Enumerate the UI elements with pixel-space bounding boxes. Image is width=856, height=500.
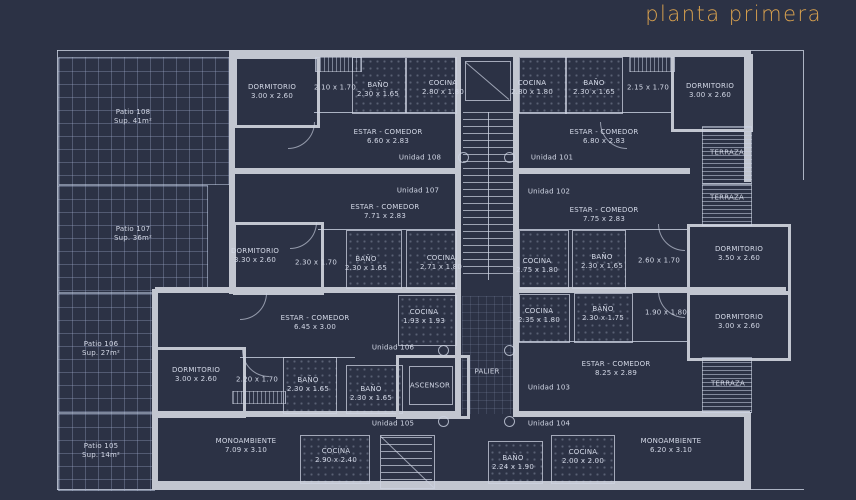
door-symbol: [504, 416, 515, 427]
room-dims: 2.60 x 1.70: [638, 256, 680, 265]
room-dims: 3.00 x 2.60: [715, 322, 763, 331]
room-name: MONOAMBIENTE: [641, 437, 702, 446]
room-name: ESTAR - COMEDOR: [570, 206, 639, 215]
room-dims: 6.60 x 2.83: [354, 137, 423, 146]
room-name: BAÑO: [287, 376, 329, 385]
room-dims: 2.80 x 1.80: [422, 88, 464, 97]
page-title: planta primera: [645, 2, 822, 27]
room-name: DORMITORIO: [231, 247, 279, 256]
room-name: COCINA: [422, 79, 464, 88]
room-dims: 2.30 x 1.65: [573, 88, 615, 97]
room-label: ESTAR - COMEDOR 7.75 x 2.83: [570, 206, 639, 224]
room-label: COCINA 2.80 x 1.80: [511, 79, 553, 97]
unit-label: Unidad 103: [528, 383, 570, 392]
room-label: BAÑO 2.30 x 1.75: [582, 305, 624, 323]
unit-label: Unidad 107: [397, 186, 439, 195]
room-name: BAÑO: [573, 79, 615, 88]
room-dims: 2.30 x 1.65: [357, 90, 399, 99]
terraza-label: TERRAZA: [710, 193, 744, 202]
room-dims: 6.80 x 2.83: [570, 137, 639, 146]
wall: [233, 168, 457, 174]
ascensor-name: ASCENSOR: [410, 381, 450, 390]
room-dims: 6.20 x 3.10: [641, 446, 702, 455]
patio-label: Patio 106 Sup. 27m²: [82, 340, 120, 358]
hatch-strip: [629, 57, 675, 72]
room-label: BAÑO 2.30 x 1.65: [357, 81, 399, 99]
room-dims: 2.71 x 1.80: [420, 263, 462, 272]
room-label: BAÑO 2.30 x 1.65: [573, 79, 615, 97]
dim-label: 1.90 x 1.80: [645, 308, 687, 317]
unit-label: Unidad 104: [528, 419, 570, 428]
door-arc: [288, 122, 315, 149]
room-dims: 6.45 x 3.00: [281, 323, 350, 332]
room-dims: 7.75 x 2.83: [570, 215, 639, 224]
partition: [318, 229, 455, 230]
room-label: MONOAMBIENTE 6.20 x 3.10: [641, 437, 702, 455]
patio-name: Patio 105: [82, 442, 120, 451]
unit-name: Unidad 105: [372, 419, 414, 428]
room-dims: 7.09 x 3.10: [216, 446, 277, 455]
room-label: DORMITORIO 3.00 x 2.60: [715, 313, 763, 331]
room-label: ESTAR - COMEDOR 6.45 x 3.00: [281, 314, 350, 332]
room-dims: 3.30 x 2.60: [231, 256, 279, 265]
unit-name: Unidad 107: [397, 186, 439, 195]
terraza-label: TERRAZA: [710, 148, 744, 157]
door-symbol: [504, 152, 515, 163]
room-dims: 2.30 x 1.65: [581, 262, 623, 271]
room-name: ESTAR - COMEDOR: [570, 128, 639, 137]
room-label: BAÑO 2.24 x 1.90: [492, 454, 534, 472]
partition: [519, 112, 671, 113]
terraza-name: TERRAZA: [710, 148, 744, 157]
patio-label: Patio 108 Sup. 41m²: [114, 108, 152, 126]
hatch-strip: [315, 57, 362, 72]
door-arc: [240, 293, 267, 320]
room-dims: 2.15 x 1.70: [627, 83, 669, 92]
room-name: COCINA: [420, 254, 462, 263]
unit-name: Unidad 108: [399, 153, 441, 162]
stair-stringer: [488, 112, 489, 280]
dim-label: 2.10 x 1.70: [314, 83, 356, 92]
room-name: MONOAMBIENTE: [216, 437, 277, 446]
door-symbol: [438, 416, 449, 427]
dim-label: 2.20 x 1.70: [236, 375, 278, 384]
room-label: ESTAR - COMEDOR 6.80 x 2.83: [570, 128, 639, 146]
wall: [152, 481, 751, 490]
unit-label: Unidad 102: [528, 187, 570, 196]
room-label: DORMITORIO 3.30 x 2.60: [231, 247, 279, 265]
hatch-strip: [232, 391, 286, 404]
room-label: MONOAMBIENTE 7.09 x 3.10: [216, 437, 277, 455]
terraza-area-2: [702, 184, 752, 226]
room-dims: 1.90 x 1.80: [645, 308, 687, 317]
patio-sup: Sup. 41m²: [114, 117, 152, 126]
unit-name: Unidad 103: [528, 383, 570, 392]
room-label: COCINA 2.71 x 1.80: [420, 254, 462, 272]
partition: [519, 341, 687, 342]
wall: [518, 168, 690, 174]
room-dims: 2.24 x 1.90: [492, 463, 534, 472]
room-name: COCINA: [511, 79, 553, 88]
room-label: BAÑO 2.30 x 1.65: [345, 255, 387, 273]
patio-sup: Sup. 14m²: [82, 451, 120, 460]
room-dims: 2.30 x 1.65: [345, 264, 387, 273]
palier-name: PALIER: [474, 367, 499, 376]
patio-name: Patio 106: [82, 340, 120, 349]
room-dims: 7.71 x 2.83: [351, 212, 420, 221]
room-label: ESTAR - COMEDOR 6.60 x 2.83: [354, 128, 423, 146]
room-dims: 2.75 x 1.80: [516, 266, 558, 275]
room-name: DORMITORIO: [172, 366, 220, 375]
door-arc: [242, 350, 269, 377]
palier-label: PALIER: [474, 367, 499, 376]
room-label: BAÑO 2.30 x 1.65: [287, 376, 329, 394]
room-name: ESTAR - COMEDOR: [582, 360, 651, 369]
room-label: COCINA 2.90 x 2.40: [315, 447, 357, 465]
room-label: COCINA 2.00 x 2.00: [562, 448, 604, 466]
room-dims: 2.20 x 1.70: [236, 375, 278, 384]
room-dims: 8.25 x 2.89: [582, 369, 651, 378]
room-dims: 2.10 x 1.70: [314, 83, 356, 92]
terraza-label: TERRAZA: [711, 379, 745, 388]
room-name: COCINA: [315, 447, 357, 456]
room-dims: 3.00 x 2.60: [248, 92, 296, 101]
room-label: BAÑO 2.30 x 1.65: [581, 253, 623, 271]
room-name: DORMITORIO: [686, 82, 734, 91]
dim-label: 2.60 x 1.70: [638, 256, 680, 265]
terraza-name: TERRAZA: [710, 193, 744, 202]
room-dims: 2.90 x 2.40: [315, 456, 357, 465]
patio-label: Patio 105 Sup. 14m²: [82, 442, 120, 460]
unit-label: Unidad 101: [531, 153, 573, 162]
room-name: ESTAR - COMEDOR: [354, 128, 423, 137]
room-dims: 2.35 x 1.80: [518, 316, 560, 325]
dim-label: 2.30 x 1.70: [295, 258, 337, 267]
unit-name: Unidad 104: [528, 419, 570, 428]
room-name: BAÑO: [350, 385, 392, 394]
terraza-name: TERRAZA: [711, 379, 745, 388]
room-dims: 2.30 x 1.75: [582, 314, 624, 323]
room-dims: 3.50 x 2.60: [715, 254, 763, 263]
room-label: COCINA 2.75 x 1.80: [516, 257, 558, 275]
dim-label: 2.15 x 1.70: [627, 83, 669, 92]
floor-plan-canvas: planta primera: [0, 0, 856, 500]
room-dims: 2.30 x 1.65: [287, 385, 329, 394]
room-name: COCINA: [562, 448, 604, 457]
unit-label: Unidad 105: [372, 419, 414, 428]
room-label: COCINA 2.35 x 1.80: [518, 307, 560, 325]
room-dims: 1.93 x 1.93: [403, 317, 445, 326]
room-label: DORMITORIO 3.00 x 2.60: [172, 366, 220, 384]
patio-label: Patio 107 Sup. 36m²: [114, 225, 152, 243]
room-name: BAÑO: [492, 454, 534, 463]
room-label: DORMITORIO 3.50 x 2.60: [715, 245, 763, 263]
room-label: ESTAR - COMEDOR 7.71 x 2.83: [351, 203, 420, 221]
door-arc: [658, 224, 685, 251]
room-label: BAÑO 2.30 x 1.65: [350, 385, 392, 403]
room-dims: 3.00 x 2.60: [172, 375, 220, 384]
room-dims: 2.30 x 1.65: [350, 394, 392, 403]
ascensor-label: ASCENSOR: [410, 381, 450, 390]
patio-sup: Sup. 27m²: [82, 349, 120, 358]
site-boundary-right: [803, 50, 804, 180]
room-name: BAÑO: [581, 253, 623, 262]
room-name: BAÑO: [345, 255, 387, 264]
unit-name: Unidad 102: [528, 187, 570, 196]
patio-name: Patio 108: [114, 108, 152, 117]
room-name: COCINA: [518, 307, 560, 316]
room-dims: 3.00 x 2.60: [686, 91, 734, 100]
partition: [314, 112, 455, 113]
room-label: COCINA 1.93 x 1.93: [403, 308, 445, 326]
patio-sup: Sup. 36m²: [114, 234, 152, 243]
room-dims: 2.80 x 1.80: [511, 88, 553, 97]
wall: [744, 412, 751, 484]
door-symbol: [458, 152, 469, 163]
room-label: DORMITORIO 3.00 x 2.60: [686, 82, 734, 100]
room-name: ESTAR - COMEDOR: [351, 203, 420, 212]
room-name: DORMITORIO: [715, 245, 763, 254]
room-name: COCINA: [516, 257, 558, 266]
room-label: DORMITORIO 3.00 x 2.60: [248, 83, 296, 101]
unit-name: Unidad 101: [531, 153, 573, 162]
room-name: DORMITORIO: [715, 313, 763, 322]
room-label: ESTAR - COMEDOR 8.25 x 2.89: [582, 360, 651, 378]
door-symbol: [504, 345, 515, 356]
patio-name: Patio 107: [114, 225, 152, 234]
room-name: DORMITORIO: [248, 83, 296, 92]
unit-label: Unidad 106: [372, 343, 414, 352]
unit-name: Unidad 106: [372, 343, 414, 352]
room-dims: 2.30 x 1.70: [295, 258, 337, 267]
room-dims: 2.00 x 2.00: [562, 457, 604, 466]
room-name: BAÑO: [357, 81, 399, 90]
door-symbol: [438, 345, 449, 356]
room-name: COCINA: [403, 308, 445, 317]
unit-label: Unidad 108: [399, 153, 441, 162]
room-label: COCINA 2.80 x 1.80: [422, 79, 464, 97]
room-name: ESTAR - COMEDOR: [281, 314, 350, 323]
room-name: BAÑO: [582, 305, 624, 314]
